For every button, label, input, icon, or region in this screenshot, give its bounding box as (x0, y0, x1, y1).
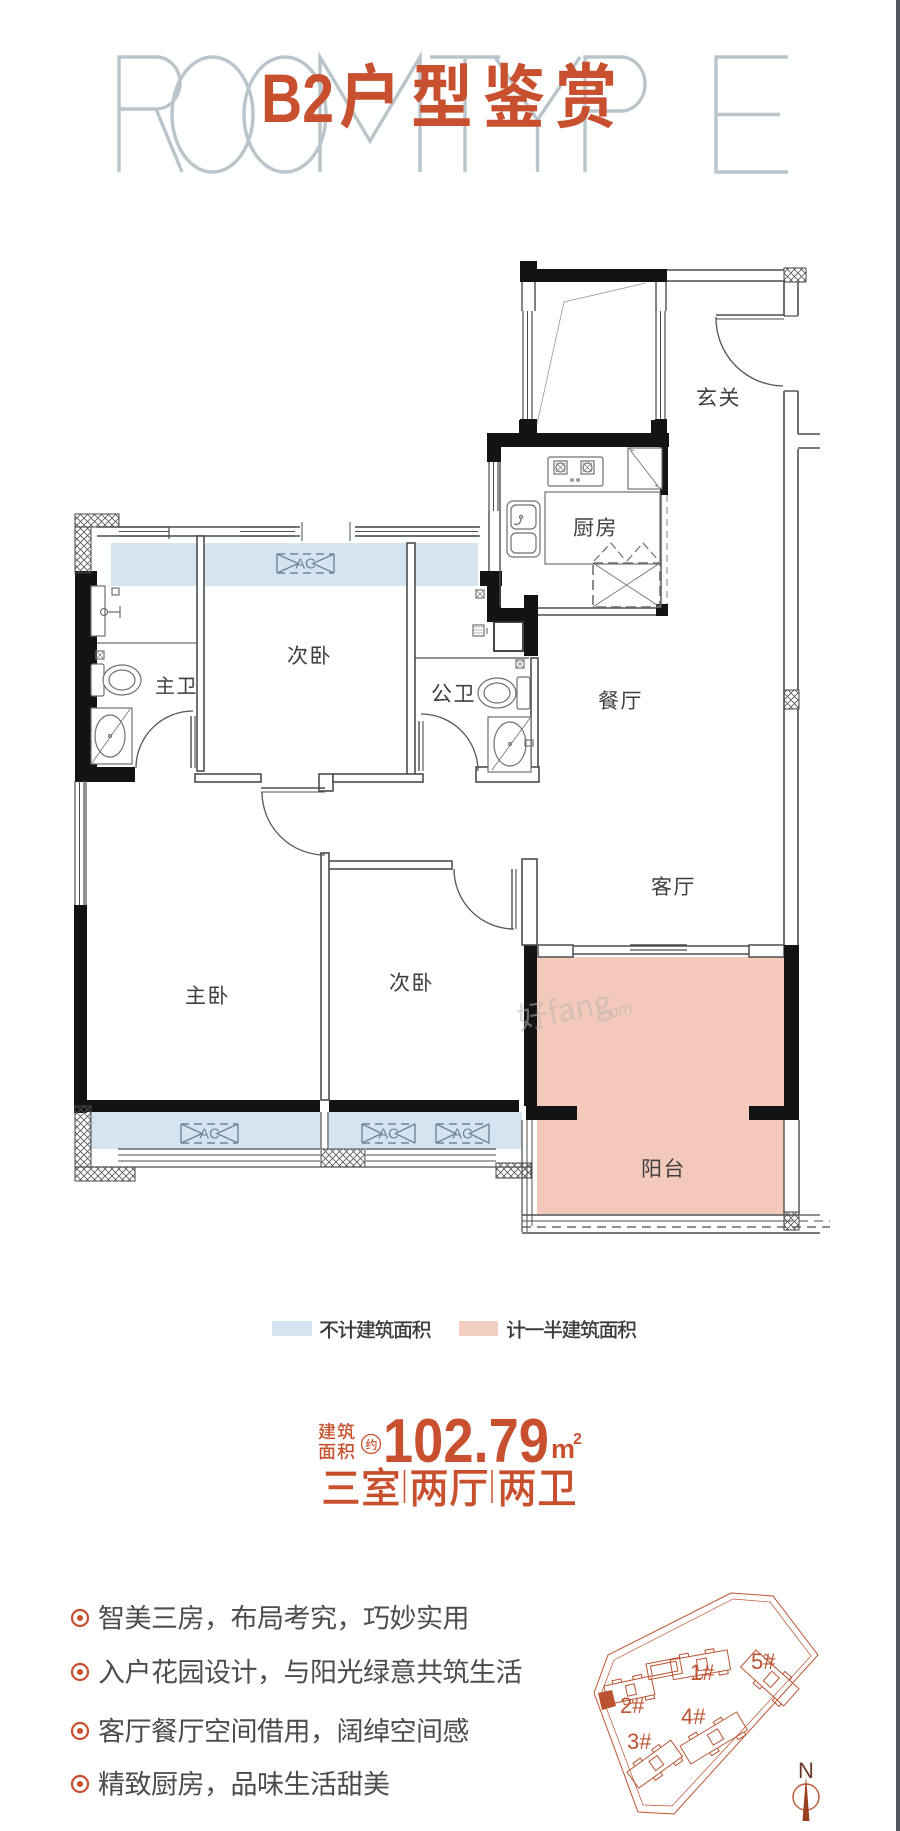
svg-text:AC: AC (378, 1127, 398, 1143)
svg-text:AC: AC (295, 557, 315, 573)
svg-text:AC: AC (452, 1127, 472, 1143)
svg-text:4#: 4# (681, 1704, 706, 1729)
svg-text:3#: 3# (627, 1729, 652, 1754)
svg-text:102.79: 102.79 (383, 1407, 549, 1476)
svg-text:1#: 1# (690, 1660, 715, 1685)
svg-text:AC: AC (199, 1127, 219, 1143)
svg-text:2#: 2# (620, 1693, 645, 1718)
svg-text:5#: 5# (751, 1649, 776, 1674)
svg-text:B2: B2 (261, 60, 334, 137)
svg-text:m: m (551, 1434, 575, 1464)
svg-text:2: 2 (573, 1431, 582, 1448)
